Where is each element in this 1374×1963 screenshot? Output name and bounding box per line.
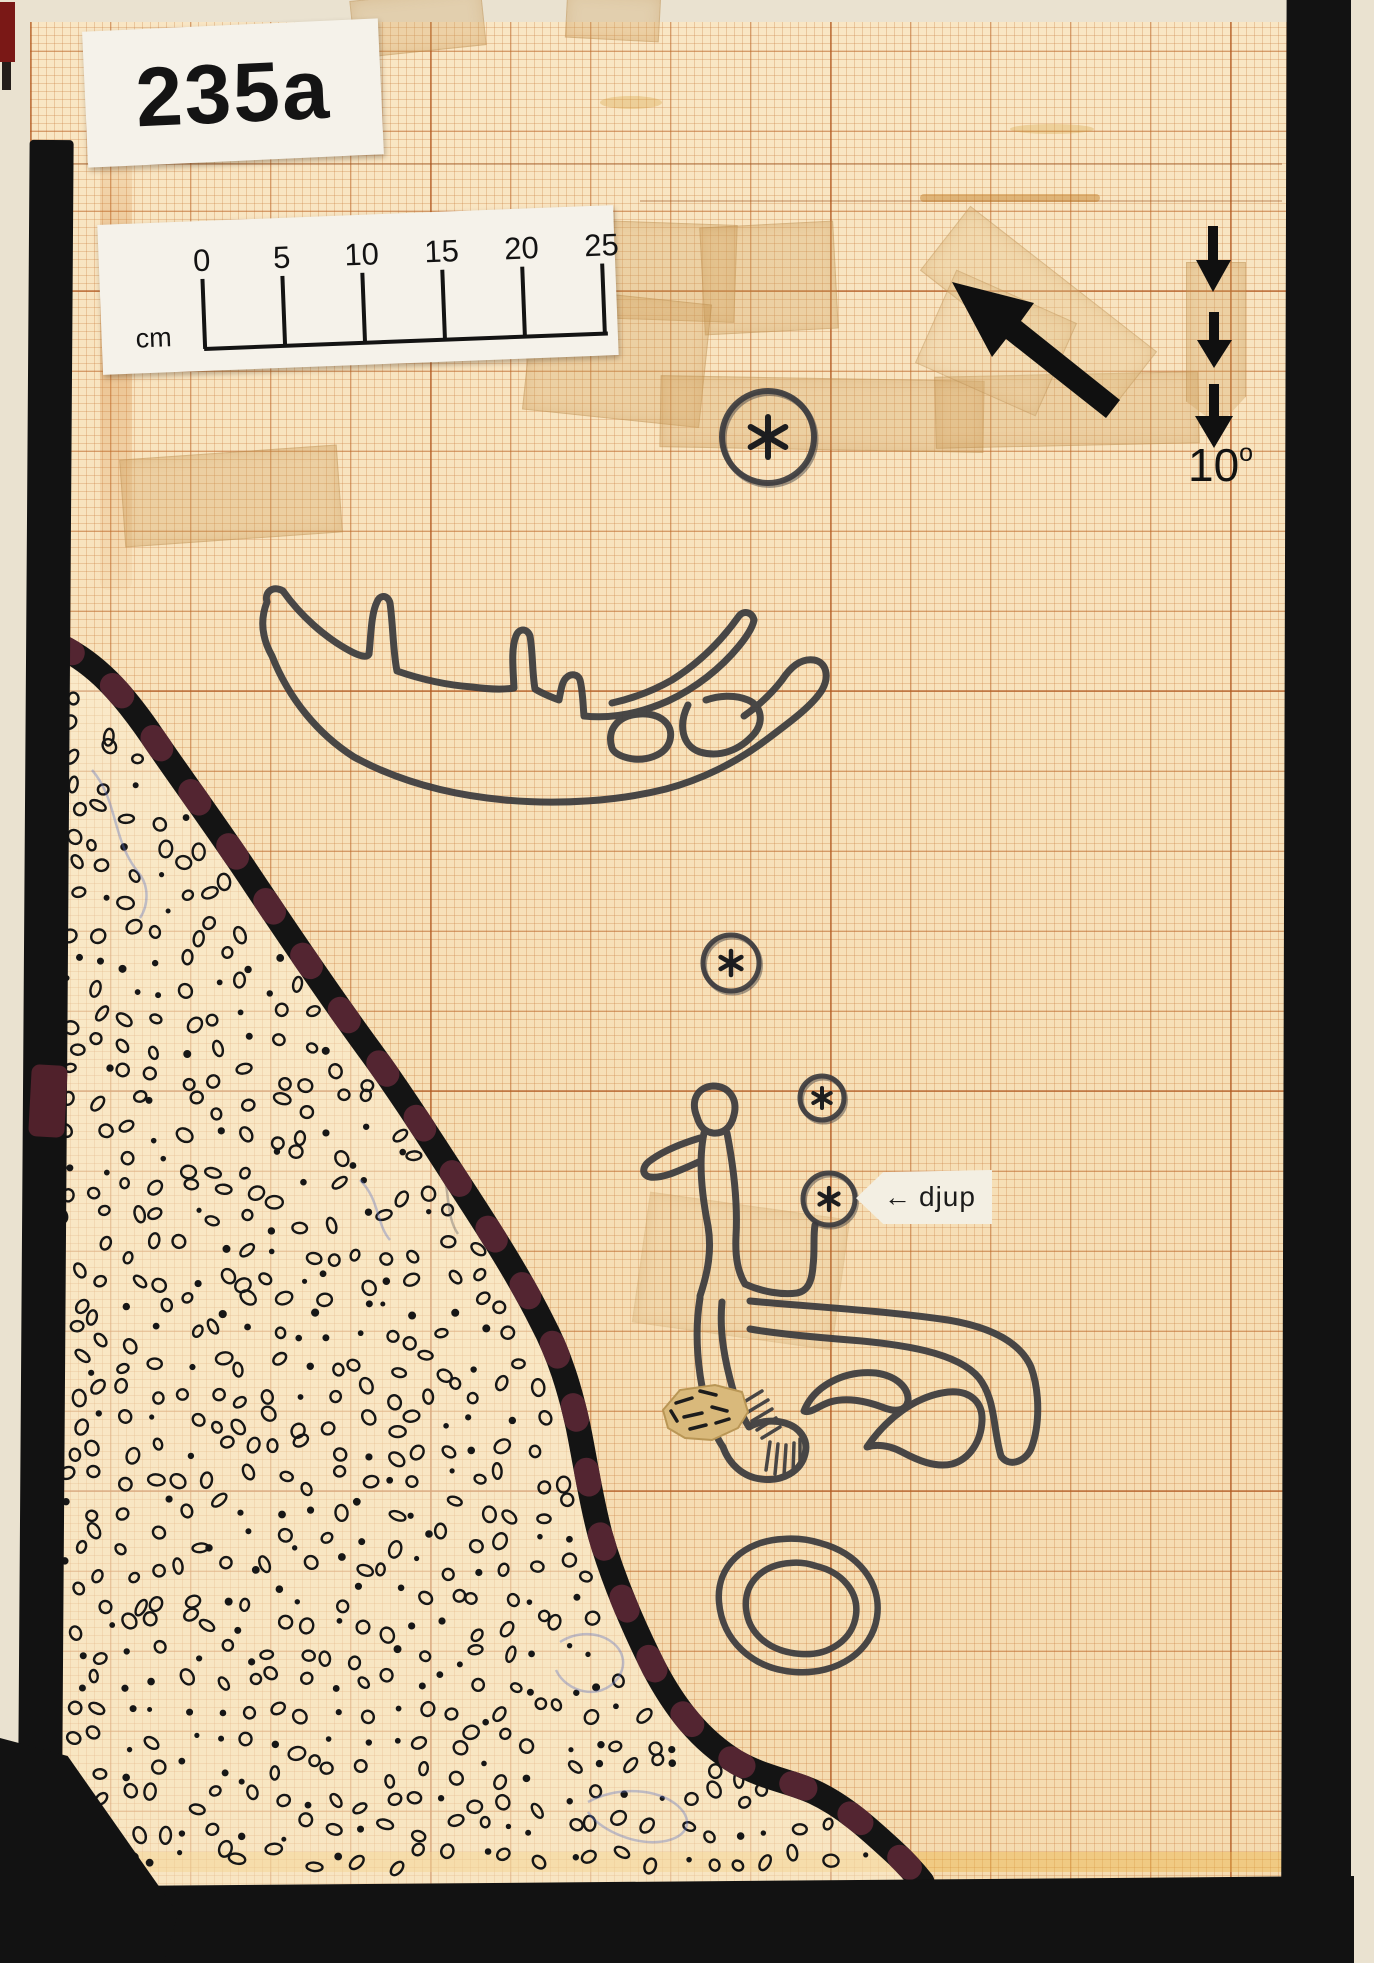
beige-patch <box>663 1385 748 1440</box>
ship-figure <box>263 589 826 802</box>
scale-unit-label: cm <box>135 322 172 354</box>
scale-tick <box>520 267 526 337</box>
scale-tick-label: 5 <box>259 239 304 277</box>
depth-pointer-icon: ← <box>884 1182 911 1213</box>
scale-tick-label: 15 <box>419 233 464 271</box>
cup-marks <box>703 391 857 1227</box>
black-tape-right <box>1281 0 1351 1963</box>
direction-arrow-icon <box>952 282 1120 418</box>
plate-id-card: 235a <box>82 18 384 167</box>
maroon-mark <box>28 1064 68 1138</box>
scale-tick <box>361 273 367 343</box>
scale-tick-label: 25 <box>579 227 624 265</box>
scale-tick <box>600 264 606 334</box>
dark-corner-mark <box>2 62 11 90</box>
scanned-field-drawing: 235a 0510152025 cm 10o ← djup <box>0 0 1374 1963</box>
red-corner-mark <box>0 2 15 62</box>
ring-figure <box>719 1539 878 1673</box>
scale-baseline <box>204 331 608 351</box>
scale-tick <box>441 270 447 340</box>
scale-tick-label: 0 <box>179 242 224 280</box>
plate-id-text: 235a <box>133 40 332 146</box>
scale-bar-card: 0510152025 cm <box>97 205 618 375</box>
cup-mark <box>722 391 816 485</box>
depth-tag-label: djup <box>919 1181 976 1213</box>
foot-hatching <box>744 1391 800 1476</box>
declination-label: 10o <box>1188 438 1253 492</box>
scale-tick <box>201 279 207 349</box>
scale-tick <box>281 276 287 346</box>
dotted-rock-area <box>33 646 925 1910</box>
cup-mark <box>703 935 761 993</box>
declination-arrow-icon <box>1195 226 1233 448</box>
scale-tick-label: 20 <box>499 230 544 268</box>
scale-tick-label: 10 <box>339 236 384 274</box>
scale-ruler: 0510152025 <box>97 205 618 375</box>
black-tape-bottom <box>64 1876 1354 1963</box>
cup-mark <box>800 1076 846 1122</box>
cup-mark <box>803 1173 857 1227</box>
